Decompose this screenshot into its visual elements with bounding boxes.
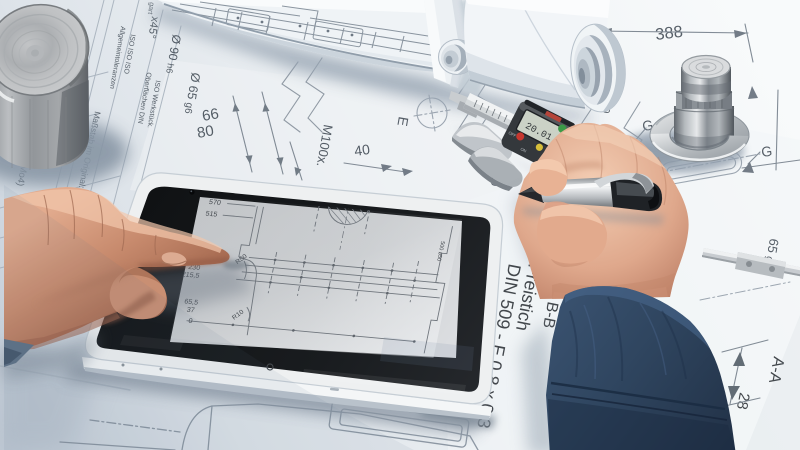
svg-text:28: 28 bbox=[733, 391, 753, 411]
svg-text:388: 388 bbox=[654, 23, 684, 44]
svg-text:G: G bbox=[760, 143, 773, 160]
svg-text:40: 40 bbox=[353, 141, 371, 159]
svg-text:80: 80 bbox=[196, 122, 215, 142]
svg-text:570: 570 bbox=[208, 199, 221, 207]
svg-text:515: 515 bbox=[205, 211, 218, 219]
svg-text:37: 37 bbox=[186, 307, 195, 315]
